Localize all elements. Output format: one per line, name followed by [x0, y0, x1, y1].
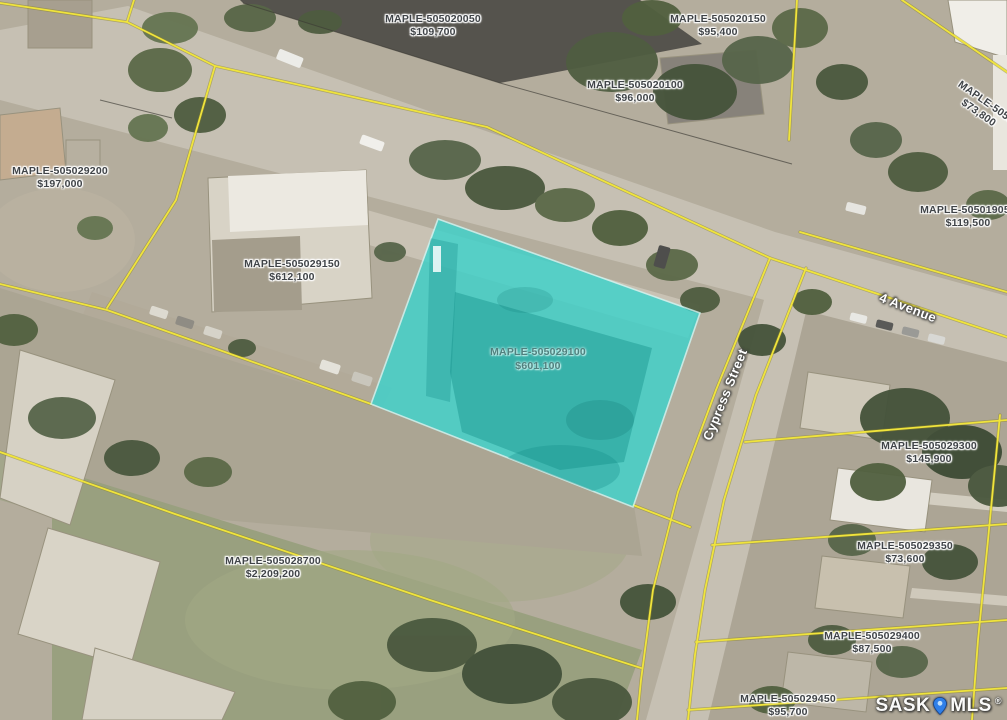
saskmls-watermark: SASK MLS ®	[875, 695, 1002, 717]
watermark-mls: MLS	[950, 695, 992, 717]
map-viewport[interactable]: MAPLE-505020050 $109,700 MAPLE-505020150…	[0, 0, 1007, 720]
satellite-imagery	[0, 0, 1007, 720]
watermark-sask: SASK	[875, 695, 930, 717]
watermark-registered: ®	[995, 696, 1002, 706]
shed-top-left	[66, 140, 100, 170]
house-east-3	[815, 556, 910, 618]
map-pin-icon	[933, 697, 947, 715]
house-top-left	[0, 108, 66, 180]
